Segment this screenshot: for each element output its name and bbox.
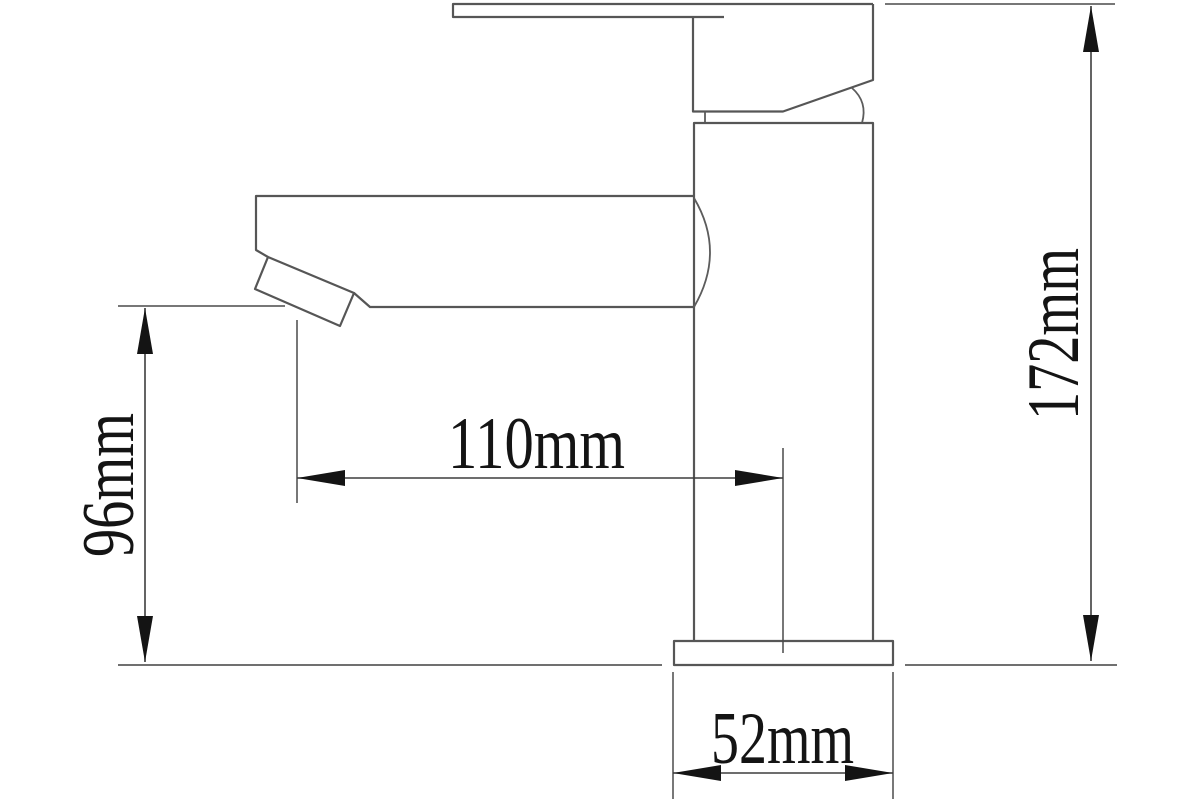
faucet-dimension-diagram: 96mm 110mm 172mm 52mm — [0, 0, 1200, 800]
arrow-down-icon — [1083, 615, 1099, 661]
arrow-up-icon — [1083, 6, 1099, 52]
dimension-label-172mm: 172mm — [1013, 248, 1095, 420]
dimension-label-110mm: 110mm — [448, 403, 625, 485]
dimension-52mm: 52mm — [673, 672, 893, 799]
arrow-up-icon — [137, 308, 153, 354]
aerator-outline — [255, 257, 354, 326]
technical-drawing: 96mm 110mm 172mm 52mm — [0, 0, 1200, 800]
dimension-110mm: 110mm — [297, 320, 783, 653]
dimension-label-52mm: 52mm — [711, 698, 854, 780]
handle-lever-outline — [453, 4, 873, 17]
dimension-96mm: 96mm — [68, 306, 285, 662]
faucet-outline — [118, 4, 1117, 665]
handle-pivot-arc — [852, 88, 864, 123]
spout-body-joint-arc — [694, 198, 710, 307]
arrow-right-icon — [735, 470, 783, 486]
handle-body-outline — [693, 4, 873, 112]
spout-outline — [256, 196, 694, 307]
arrow-down-icon — [137, 616, 153, 662]
arrow-left-icon — [297, 470, 345, 486]
dimension-label-96mm: 96mm — [68, 413, 150, 557]
dimension-172mm: 172mm — [885, 4, 1115, 661]
